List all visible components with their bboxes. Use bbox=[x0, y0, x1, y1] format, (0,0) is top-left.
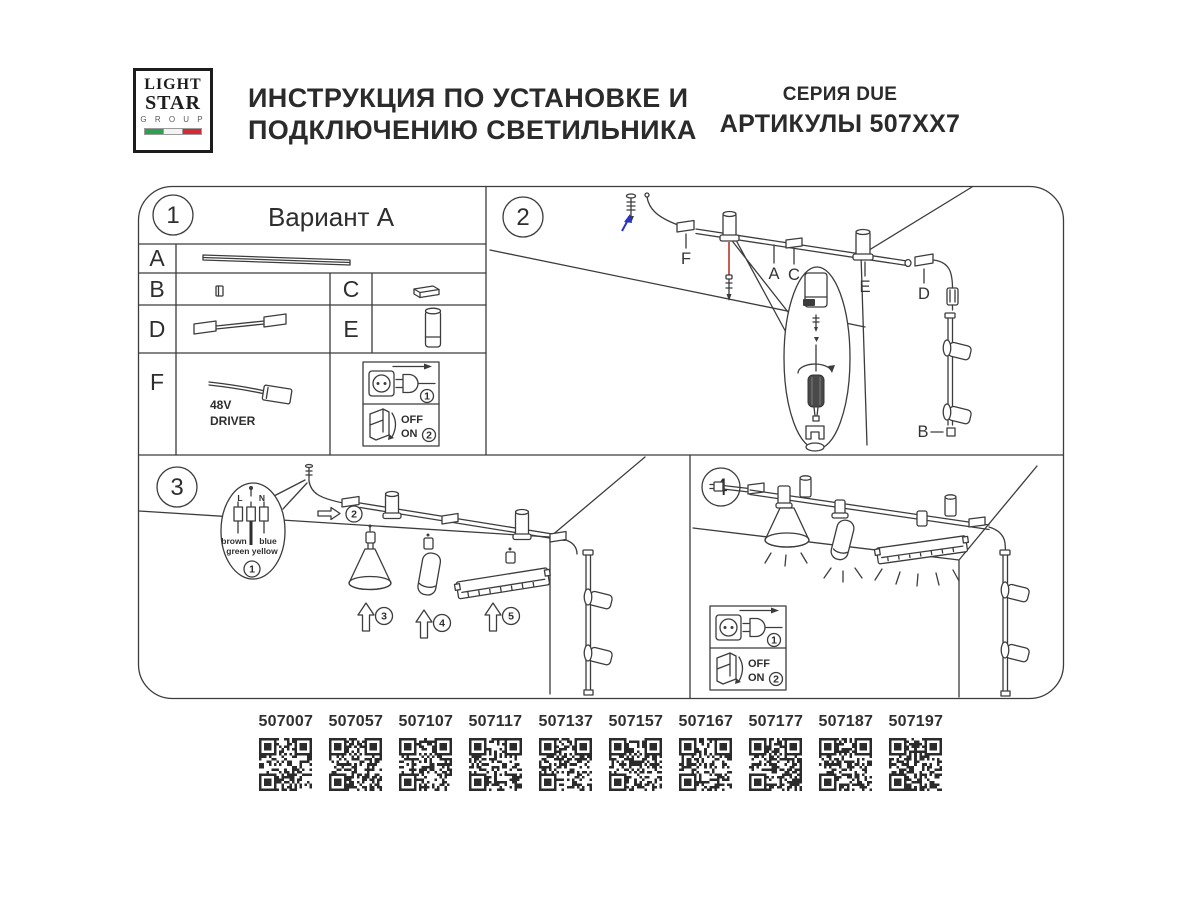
installation-diagram: 1 Вариант А A B C D E F bbox=[137, 185, 1065, 700]
wire-greenyellow-label: green yellow bbox=[226, 546, 278, 556]
logo-text-star: STAR bbox=[136, 93, 210, 113]
ceiling-screw-icon bbox=[306, 465, 313, 482]
step-cone-number: 3 bbox=[381, 611, 387, 623]
qr-article-number: 507197 bbox=[889, 713, 942, 731]
wall-plug-icon bbox=[947, 288, 958, 310]
articles-code: АРТИКУЛЫ 507XX7 bbox=[700, 110, 980, 139]
part-label-c: C bbox=[788, 266, 800, 284]
flex-connector-part-icon bbox=[194, 314, 286, 334]
qr-code-image bbox=[259, 738, 312, 791]
instruction-sheet: LIGHT STAR G R O U P ИНСТРУКЦИЯ ПО УСТАН… bbox=[0, 0, 1200, 900]
variant-title: Вариант А bbox=[268, 202, 395, 232]
qr-code-image bbox=[539, 738, 592, 791]
connector-part-icon bbox=[414, 286, 439, 298]
hanging-mount-icon bbox=[513, 510, 531, 540]
spot-on-track-icon bbox=[853, 230, 873, 261]
switch-on-label: ON bbox=[748, 672, 765, 684]
flag-green-stripe bbox=[144, 128, 164, 135]
panel3-number: 3 bbox=[170, 474, 183, 501]
qr-item: 507197 bbox=[889, 713, 942, 791]
qr-item: 507057 bbox=[329, 713, 382, 791]
row-label-f: F bbox=[150, 369, 164, 395]
cylinder-lamp-icon bbox=[824, 500, 862, 582]
qr-code-image bbox=[749, 738, 802, 791]
qr-code-image bbox=[889, 738, 942, 791]
flag-white-stripe bbox=[164, 128, 183, 135]
qr-article-number: 507157 bbox=[609, 713, 662, 731]
part-label-e: E bbox=[859, 278, 870, 296]
insert-arrow-icon bbox=[485, 603, 501, 631]
qr-item: 507117 bbox=[469, 713, 522, 791]
qr-article-number: 507177 bbox=[749, 713, 802, 731]
ceiling-mount-icon bbox=[720, 212, 739, 242]
panel2-number: 2 bbox=[516, 204, 529, 231]
panel1-number: 1 bbox=[166, 202, 179, 229]
wiring-detail-callout: L N brown blue green yellow 1 bbox=[221, 483, 285, 579]
end-connector-icon bbox=[550, 532, 566, 543]
italian-flag-icon bbox=[144, 128, 202, 135]
driver-voltage-label: 48V bbox=[210, 398, 231, 412]
panel3-wiring-diagram: 3 L N brown blue green ye bbox=[139, 457, 645, 695]
driver-name-label: DRIVER bbox=[210, 414, 256, 428]
row-label-a: A bbox=[149, 245, 165, 271]
insert-arrow-icon bbox=[358, 603, 374, 631]
spot-part-icon bbox=[426, 308, 441, 347]
step-switch-number: 2 bbox=[773, 674, 779, 686]
ceiling-mount-icon bbox=[383, 492, 401, 519]
track-connector-icon bbox=[442, 514, 458, 525]
qr-article-number: 507107 bbox=[399, 713, 452, 731]
power-steps-box: 1 OFF ON 2 bbox=[363, 362, 439, 446]
screw-direction-arrow-icon bbox=[622, 214, 632, 231]
series-name: СЕРИЯ DUE bbox=[700, 84, 980, 106]
switch-off-label: OFF bbox=[748, 658, 770, 670]
corner-cable-line bbox=[933, 260, 953, 288]
flag-red-stripe bbox=[183, 128, 202, 135]
qr-item: 507007 bbox=[259, 713, 312, 791]
qr-code-image bbox=[609, 738, 662, 791]
slide-direction-arrow-icon bbox=[318, 508, 340, 520]
light-rays bbox=[765, 553, 807, 566]
qr-code-image bbox=[679, 738, 732, 791]
qr-code-image bbox=[469, 738, 522, 791]
end-connector-icon bbox=[969, 517, 985, 527]
logo-text-group: G R O U P bbox=[136, 115, 210, 124]
series-block: СЕРИЯ DUE АРТИКУЛЫ 507XX7 bbox=[700, 84, 980, 139]
linear-lamp-icon bbox=[874, 511, 969, 586]
part-label-f: F bbox=[681, 250, 691, 268]
row-label-b: B bbox=[149, 276, 164, 302]
drop-cable-line bbox=[566, 540, 577, 554]
qr-item: 507157 bbox=[609, 713, 662, 791]
insert-arrow-icon bbox=[416, 610, 432, 638]
socket-icon bbox=[716, 615, 741, 640]
step-wiring-number: 1 bbox=[249, 564, 255, 576]
qr-code-image bbox=[399, 738, 452, 791]
cylinder-lamp-icon bbox=[417, 534, 442, 597]
track-mount-icon bbox=[945, 495, 956, 516]
switch-off-label: OFF bbox=[401, 414, 423, 426]
qr-article-number: 507057 bbox=[329, 713, 382, 731]
endcap-part-icon bbox=[216, 286, 223, 296]
lightstar-logo: LIGHT STAR G R O U P bbox=[133, 68, 213, 153]
wall-track-icon bbox=[943, 313, 972, 436]
row-label-c: C bbox=[343, 276, 360, 302]
part-label-a: A bbox=[768, 265, 779, 283]
document-title: ИНСТРУКЦИЯ ПО УСТАНОВКЕ И ПОДКЛЮЧЕНИЮ СВ… bbox=[248, 82, 697, 146]
qr-item: 507177 bbox=[749, 713, 802, 791]
mains-cable-line bbox=[309, 481, 343, 503]
wall-track-icon bbox=[583, 550, 613, 695]
panel4-assembled-diagram: 4 bbox=[693, 466, 1037, 697]
qr-list: 5070075070575071075071175071375071575071… bbox=[0, 713, 1200, 791]
wire-brown-label: brown bbox=[221, 536, 247, 546]
step-plug-number: 1 bbox=[424, 391, 430, 403]
part-label-d: D bbox=[918, 285, 930, 303]
feed-cable-line bbox=[647, 197, 678, 225]
track-part-icon bbox=[203, 255, 350, 265]
cable-gland-icon bbox=[342, 497, 359, 508]
step-plug-number: 1 bbox=[771, 635, 777, 647]
qr-item: 507167 bbox=[679, 713, 732, 791]
qr-code-image bbox=[329, 738, 382, 791]
title-line-1: ИНСТРУКЦИЯ ПО УСТАНОВКЕ И bbox=[248, 82, 697, 114]
switch-on-label: ON bbox=[401, 428, 418, 440]
anchor-screw-icon bbox=[726, 275, 732, 301]
qr-article-number: 507167 bbox=[679, 713, 732, 731]
qr-item: 507187 bbox=[819, 713, 872, 791]
qr-code-image bbox=[819, 738, 872, 791]
track-connector-icon bbox=[786, 238, 802, 248]
title-line-2: ПОДКЛЮЧЕНИЮ СВЕТИЛЬНИКА bbox=[248, 114, 697, 146]
qr-article-number: 507007 bbox=[259, 713, 312, 731]
row-label-e: E bbox=[343, 316, 358, 342]
step-switch-number: 2 bbox=[426, 430, 432, 442]
corner-connector-icon bbox=[915, 254, 933, 266]
socket-icon bbox=[369, 371, 394, 396]
wire-blue-label: blue bbox=[259, 536, 277, 546]
row-label-d: D bbox=[149, 316, 166, 342]
logo-text-light: LIGHT bbox=[136, 76, 210, 93]
cone-lamp-icon bbox=[349, 525, 391, 590]
part-label-b: B bbox=[917, 423, 928, 441]
step-cylinder-number: 4 bbox=[439, 618, 445, 630]
qr-item: 507107 bbox=[399, 713, 452, 791]
qr-article-number: 507117 bbox=[469, 713, 522, 731]
qr-article-number: 507187 bbox=[819, 713, 872, 731]
light-rays bbox=[875, 569, 959, 586]
step-track-number: 2 bbox=[351, 509, 357, 521]
qr-item: 507137 bbox=[539, 713, 592, 791]
linear-lamp-icon bbox=[454, 548, 551, 600]
panel2-mounting-diagram: 2 F bbox=[490, 187, 972, 451]
light-rays bbox=[824, 568, 862, 582]
magnified-detail-callout bbox=[784, 267, 850, 451]
qr-article-number: 507137 bbox=[539, 713, 592, 731]
panel1-parts-table: 1 Вариант А A B C D E F bbox=[139, 195, 486, 455]
track-mount-icon bbox=[800, 476, 811, 497]
step-linear-number: 5 bbox=[508, 611, 514, 623]
feed-connector-icon bbox=[677, 221, 694, 233]
power-steps-box: 1 OFF ON 2 bbox=[710, 606, 786, 690]
wall-track-icon bbox=[1000, 550, 1030, 696]
